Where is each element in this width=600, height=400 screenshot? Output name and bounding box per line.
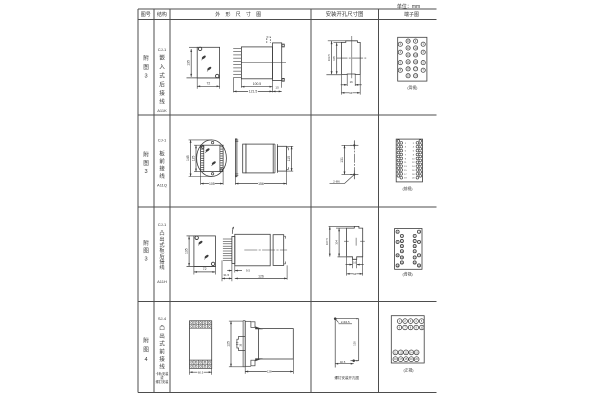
- svg-text:式: 式: [159, 72, 165, 80]
- svg-text:40.5: 40.5: [340, 360, 346, 364]
- svg-text:(前视): (前视): [402, 186, 413, 191]
- svg-text:3: 3: [144, 257, 147, 263]
- svg-text:16: 16: [350, 80, 354, 84]
- svg-text:100.5: 100.5: [253, 82, 262, 86]
- svg-text:前: 前: [159, 348, 165, 356]
- svg-text:135: 135: [186, 60, 190, 66]
- svg-text:156: 156: [258, 182, 264, 186]
- svg-text:125: 125: [226, 341, 230, 347]
- svg-text:115: 115: [287, 156, 291, 162]
- svg-text:附: 附: [143, 337, 149, 345]
- svg-text:线: 线: [159, 172, 165, 180]
- svg-text:64: 64: [353, 272, 357, 276]
- svg-text:嵌: 嵌: [159, 55, 165, 62]
- svg-text:15: 15: [275, 86, 279, 90]
- svg-text:接: 接: [159, 89, 165, 97]
- svg-text:A11K: A11K: [157, 108, 167, 113]
- svg-text:附: 附: [143, 239, 149, 247]
- svg-text:SJ-4: SJ-4: [158, 316, 167, 321]
- svg-text:104: 104: [335, 240, 339, 245]
- svg-text:3: 3: [144, 169, 147, 175]
- svg-text:103.5: 103.5: [327, 54, 331, 61]
- svg-text:72: 72: [203, 267, 207, 271]
- svg-text:105: 105: [209, 182, 215, 186]
- svg-text:2-Φ4.5: 2-Φ4.5: [341, 320, 350, 324]
- svg-text:附: 附: [143, 151, 149, 159]
- svg-text:图: 图: [143, 159, 149, 167]
- svg-text:线: 线: [159, 263, 164, 271]
- svg-text:107.5: 107.5: [325, 238, 329, 245]
- svg-text:接: 接: [159, 355, 165, 363]
- svg-text:(背视): (背视): [407, 85, 418, 90]
- svg-text:图号: 图号: [141, 12, 151, 18]
- svg-text:前: 前: [159, 157, 165, 165]
- svg-text:附: 附: [143, 54, 149, 62]
- svg-text:接: 接: [159, 165, 165, 173]
- svg-text:72: 72: [207, 81, 211, 85]
- svg-text:端子图: 端子图: [404, 11, 419, 18]
- svg-text:60.5: 60.5: [198, 370, 204, 374]
- svg-text:板: 板: [159, 149, 165, 157]
- svg-text:出: 出: [159, 332, 165, 340]
- svg-text:入: 入: [159, 64, 165, 70]
- svg-text:螺钉安装: 螺钉安装: [156, 379, 170, 384]
- svg-text:线: 线: [159, 97, 165, 105]
- svg-text:2-Φ6: 2-Φ6: [333, 180, 340, 184]
- svg-text:结构: 结构: [157, 11, 167, 18]
- svg-text:31.5: 31.5: [223, 273, 229, 277]
- svg-text:4: 4: [144, 357, 147, 363]
- svg-text:120: 120: [353, 341, 357, 346]
- svg-text:126: 126: [258, 274, 264, 278]
- svg-text:图: 图: [143, 346, 149, 354]
- svg-text:9.5: 9.5: [246, 269, 251, 273]
- svg-text:128: 128: [267, 370, 272, 374]
- svg-text:图: 图: [143, 63, 149, 71]
- svg-text:线: 线: [159, 363, 165, 371]
- svg-text:131: 131: [340, 157, 344, 163]
- svg-text:螺钉安装开孔图: 螺钉安装开孔图: [335, 375, 360, 380]
- svg-text:135: 135: [185, 248, 189, 254]
- svg-text:121.5: 121.5: [249, 90, 258, 94]
- svg-text:外形尺寸图: 外形尺寸图: [215, 11, 266, 18]
- svg-text:105: 105: [332, 56, 336, 61]
- svg-text:CJ-1: CJ-1: [158, 47, 167, 52]
- svg-text:3: 3: [144, 74, 147, 80]
- svg-text:CJ-1: CJ-1: [158, 222, 167, 227]
- svg-text:(正视): (正视): [403, 368, 414, 373]
- svg-text:A11Q: A11Q: [157, 182, 167, 187]
- svg-text:125: 125: [192, 155, 196, 161]
- svg-text:145: 145: [186, 155, 190, 161]
- svg-text:安装开孔尺寸图: 安装开孔尺寸图: [326, 10, 364, 18]
- svg-text:(背视): (背视): [403, 272, 414, 277]
- svg-text:A11H: A11H: [157, 279, 167, 284]
- svg-text:图: 图: [143, 247, 149, 255]
- svg-text:式: 式: [159, 339, 165, 347]
- svg-text:后: 后: [159, 80, 165, 88]
- svg-text:凸: 凸: [159, 325, 165, 332]
- svg-text:CJ-1: CJ-1: [158, 138, 167, 143]
- svg-text:64: 64: [349, 91, 353, 95]
